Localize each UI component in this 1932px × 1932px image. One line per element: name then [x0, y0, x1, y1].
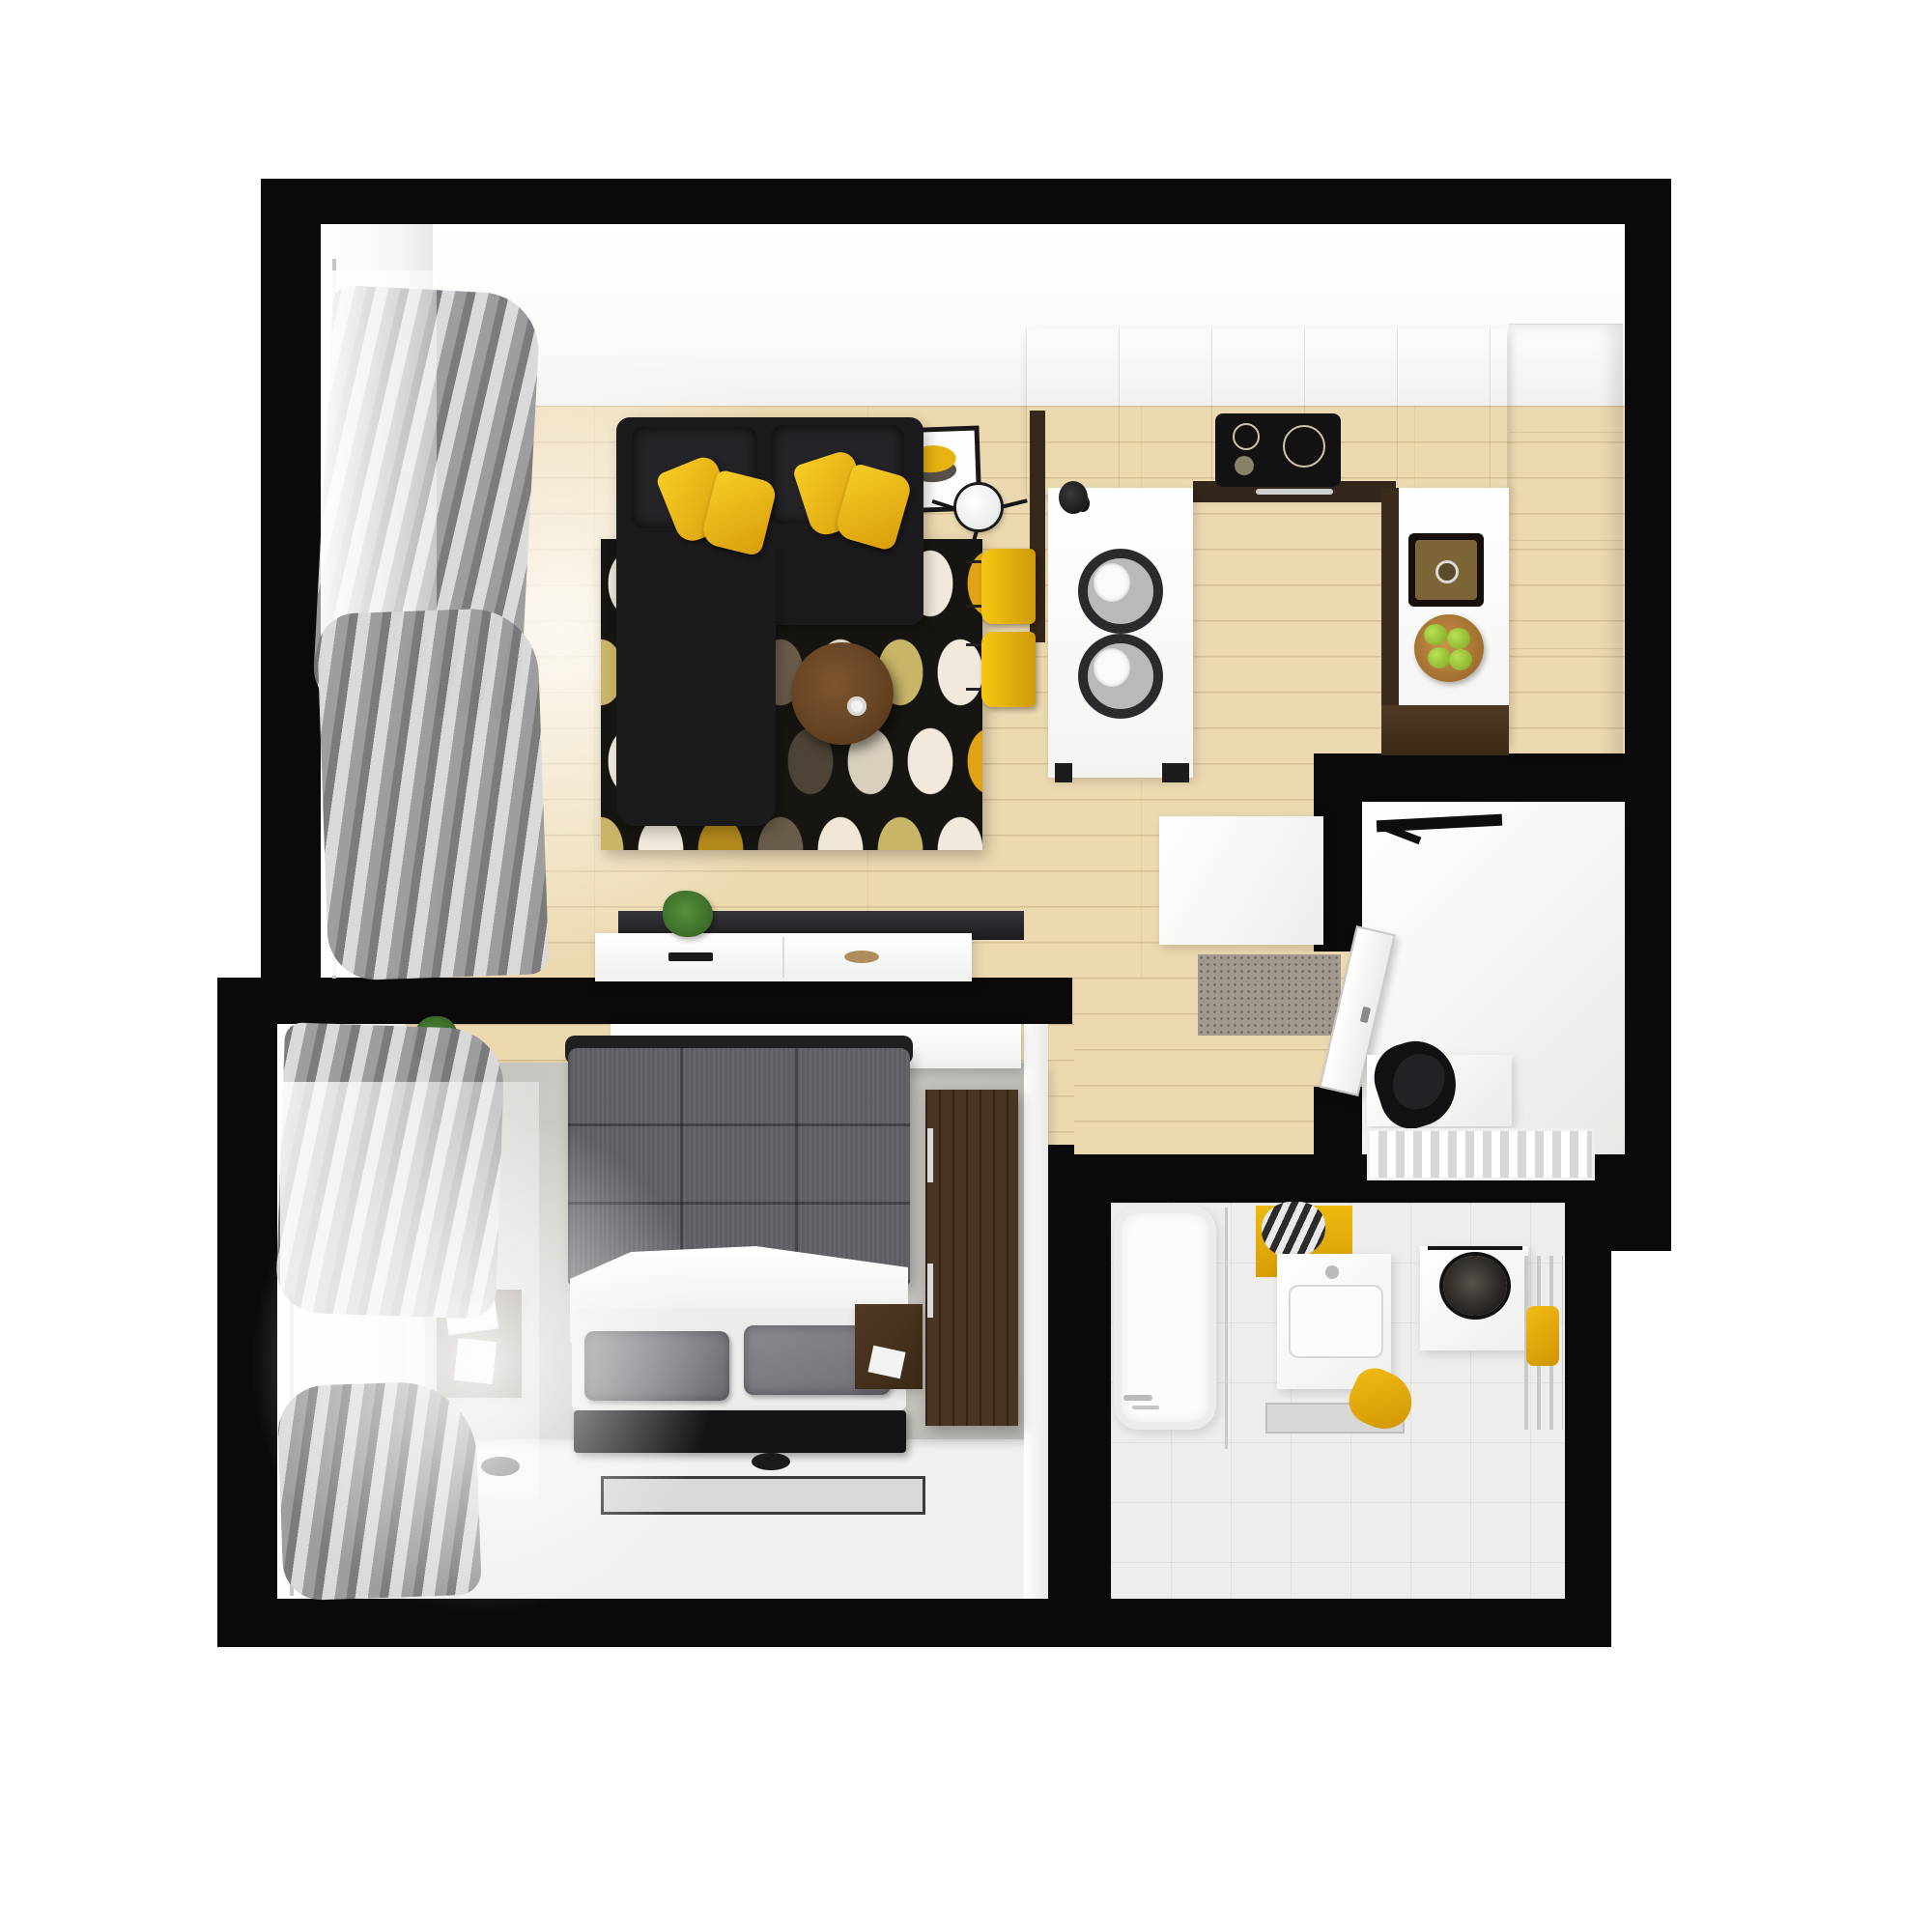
nightstand-right	[855, 1304, 923, 1389]
wall-top	[261, 179, 1671, 224]
hall-wardrobe	[1159, 816, 1323, 945]
apple-4	[1449, 649, 1472, 670]
slipper-right	[752, 1453, 790, 1470]
bar-stool-1	[981, 549, 1036, 624]
coffee-cup	[847, 696, 867, 716]
console-divider	[782, 937, 784, 978]
floor-lamp-shade	[956, 485, 1001, 529]
wardrobe-handle-1	[927, 1128, 933, 1182]
door-handle	[1360, 1007, 1371, 1023]
living-plant	[663, 891, 713, 937]
place-setting-2	[1078, 634, 1163, 719]
apple-1	[1424, 624, 1447, 645]
tv-console	[595, 933, 972, 981]
moka-pot	[1059, 481, 1088, 514]
wall-left-upper	[261, 179, 321, 1024]
bedroom-window-glow	[251, 1111, 715, 1613]
wall-living-bedroom	[217, 978, 1072, 1024]
oven-handle	[1256, 489, 1333, 495]
apple-2	[1447, 628, 1470, 649]
kitchen-sink	[1408, 533, 1484, 607]
place-setting-1	[1078, 549, 1163, 634]
induction-cooktop	[1215, 413, 1341, 487]
toilet-bowl	[1443, 1256, 1507, 1316]
wall-right-step	[1565, 1203, 1671, 1251]
wall-bathroom-left	[1058, 1154, 1111, 1599]
vanity-tap	[1325, 1265, 1339, 1279]
kitchen-tall-cabinets	[1509, 324, 1623, 763]
bath-faucet	[1123, 1395, 1152, 1401]
kitchen-brown-cabinet	[1381, 705, 1509, 755]
bedroom-right-wall-face	[1024, 1024, 1048, 1599]
bar-stool-2	[981, 632, 1036, 707]
floor-lamp	[952, 483, 1005, 535]
shoe-rack	[1367, 1128, 1595, 1180]
jacket-fold	[1388, 1049, 1449, 1115]
book	[867, 1346, 905, 1378]
hall-doormat	[1198, 954, 1341, 1036]
toilet-lid-line	[1428, 1246, 1522, 1250]
fruit-bowl	[1414, 614, 1484, 682]
shower-pole	[1225, 1207, 1228, 1449]
radiator-towel	[1526, 1306, 1559, 1366]
bedroom-doorway-floor	[1048, 1024, 1074, 1145]
sofa-chaise	[616, 541, 776, 826]
bar-leg-left	[1055, 763, 1072, 782]
apple-3	[1428, 647, 1451, 668]
wall-right-upper	[1625, 179, 1671, 1203]
vanity-basin	[1289, 1285, 1383, 1358]
console-handle-black	[668, 952, 713, 961]
wardrobe-handle-2	[927, 1264, 933, 1318]
coffee-table	[791, 642, 894, 745]
floorplan-canvas: { "scene": { "title": "3D top-down floor…	[0, 0, 1932, 1932]
bathtub	[1114, 1206, 1216, 1430]
bedroom-wardrobe	[925, 1090, 1018, 1426]
console-handle-wood	[844, 951, 879, 963]
kitchen-right-counter-front	[1381, 488, 1399, 710]
toilet-unit	[1420, 1246, 1528, 1350]
wall-right-lower	[1565, 1251, 1611, 1647]
bar-leg-right	[1162, 763, 1189, 782]
living-curtain-bottom	[316, 607, 549, 981]
